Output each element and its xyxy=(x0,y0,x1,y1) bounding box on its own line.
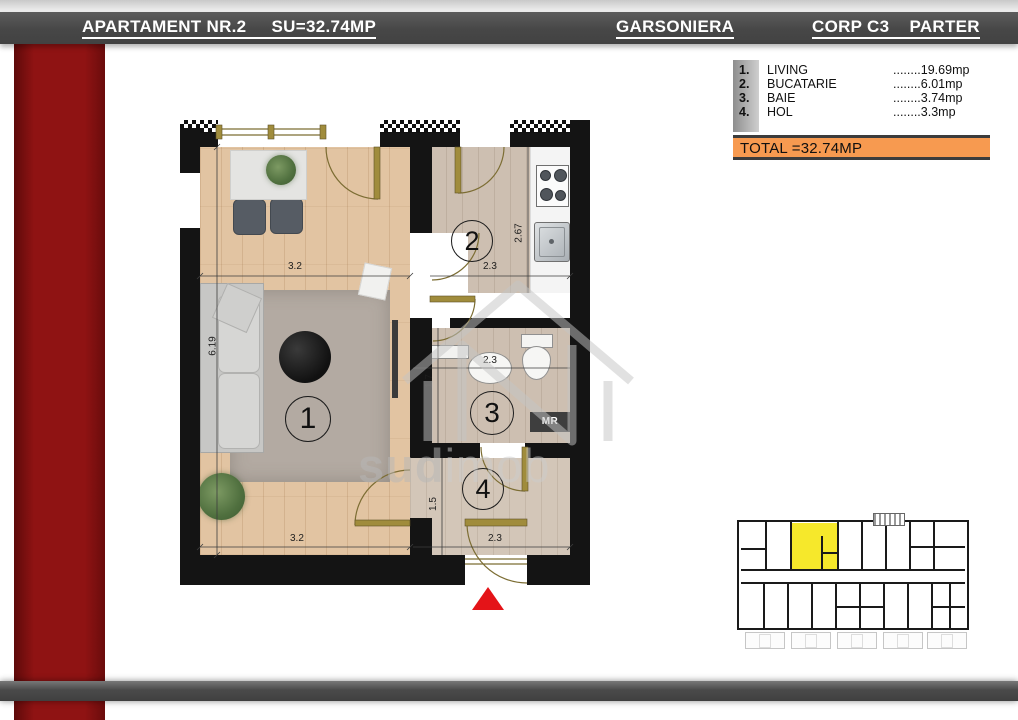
building-overview-plan xyxy=(737,520,969,652)
room-legend: 1. LIVING ........19.69mp 2. BUCATARIE .… xyxy=(733,58,991,164)
legend-name: LIVING xyxy=(767,63,808,77)
dim-hall-width: 2.3 xyxy=(488,534,502,544)
dim-bath-width: 2.3 xyxy=(483,356,497,366)
dim-living-width-top: 3.2 xyxy=(288,262,302,272)
legend-row: 3. BAIE ........3.74mp xyxy=(733,91,991,105)
legend-num: 2. xyxy=(739,77,749,91)
dim-living-width-bottom: 3.2 xyxy=(290,534,304,544)
mini-plan-balcony xyxy=(927,632,967,649)
legend-name: BAIE xyxy=(767,91,796,105)
legend-row: 2. BUCATARIE ........6.01mp xyxy=(733,77,991,91)
room-number-bath: 3 xyxy=(470,391,514,435)
mini-plan-unit-highlight xyxy=(792,523,837,570)
legend-name: BUCATARIE xyxy=(767,77,837,91)
dim-hall-height: 1.5 xyxy=(429,497,439,511)
unit-type-label: GARSONIERA xyxy=(616,17,734,39)
legend-num: 1. xyxy=(739,63,749,77)
legend-num: 4. xyxy=(739,105,749,119)
floorplan-page: APARTAMENT NR.2 SU=32.74MP GARSONIERA CO… xyxy=(0,0,1018,720)
mini-plan-stairs xyxy=(873,513,905,526)
total-area-label: TOTAL =32.74MP xyxy=(740,140,862,157)
mini-plan-corridor-wall xyxy=(741,569,965,571)
left-red-band xyxy=(14,0,105,720)
room-number-hall: 4 xyxy=(462,468,504,510)
total-area-bar: TOTAL =32.74MP xyxy=(733,135,990,160)
legend-name: HOL xyxy=(767,105,793,119)
dim-living-height: 6.19 xyxy=(209,336,219,355)
mini-plan-balcony xyxy=(883,632,923,649)
legend-value: ........3.74mp xyxy=(893,91,962,105)
header-band: APARTAMENT NR.2 SU=32.74MP GARSONIERA CO… xyxy=(0,12,1018,44)
corp-level-label: CORP C3 PARTER xyxy=(812,17,980,39)
plan-linework xyxy=(180,113,590,585)
legend-value: ........6.01mp xyxy=(893,77,962,91)
legend-row: 1. LIVING ........19.69mp xyxy=(733,63,991,77)
room-number-kitchen: 2 xyxy=(451,220,493,262)
dim-kitchen-height: 2.67 xyxy=(515,223,525,242)
dim-kitchen-width: 2.3 xyxy=(483,262,497,272)
dim-bath-height: 1.7 xyxy=(425,374,435,388)
mini-plan-balcony xyxy=(745,632,785,649)
legend-value: ........19.69mp xyxy=(893,63,969,77)
mini-plan-balcony xyxy=(837,632,877,649)
legend-num: 3. xyxy=(739,91,749,105)
legend-row: 4. HOL ........3.3mp xyxy=(733,105,991,119)
bottom-gray-band xyxy=(0,681,1018,701)
legend-value: ........3.3mp xyxy=(893,105,956,119)
mini-plan-building xyxy=(737,520,969,630)
top-gradient-strip xyxy=(0,0,1018,12)
room-number-living: 1 xyxy=(285,396,331,442)
entrance-arrow-icon xyxy=(472,587,504,610)
apartment-title: APARTAMENT NR.2 SU=32.74MP xyxy=(82,17,376,39)
mini-plan-balcony xyxy=(791,632,831,649)
apartment-floorplan: MR xyxy=(180,113,590,585)
